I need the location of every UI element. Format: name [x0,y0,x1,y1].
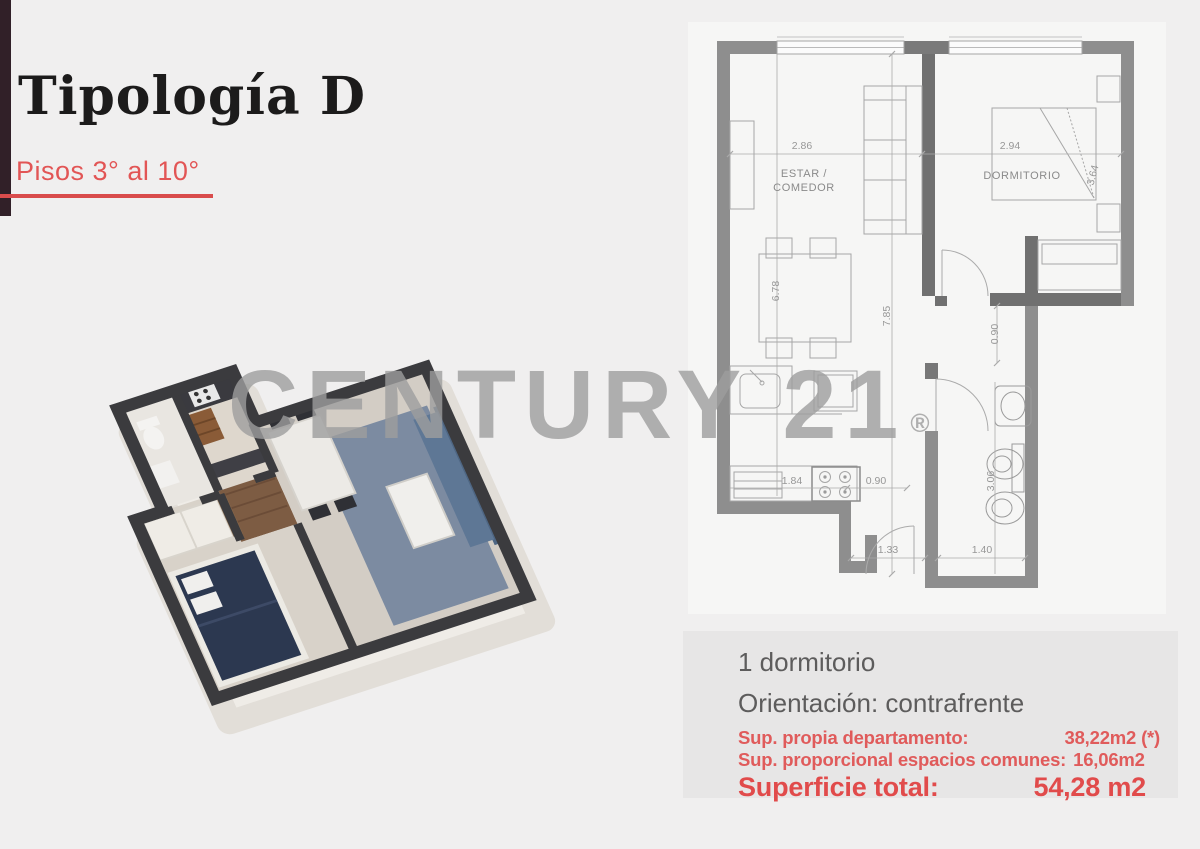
orientation: Orientación: contrafrente [738,688,1160,719]
dim-estar-depth: 6.78 [770,281,782,302]
dim-total-depth: 7.85 [881,306,893,327]
own-area-label: Sup. propia departamento: [738,727,968,749]
bedroom-count: 1 dormitorio [738,647,1160,678]
dim-hall-width: 0.90 [989,324,1001,345]
floors-subtitle: Pisos 3° al 10° [16,156,200,187]
floor-plan-svg: 2.86 2.94 3.64 6.78 7.85 0.90 1.84 0.90 … [688,22,1166,614]
total-area-value: 54,28 m2 [1034,772,1161,803]
subtitle-underline [0,194,213,198]
page-title: Tipología D [18,66,366,127]
dim-estar-width: 2.86 [792,140,813,152]
window-bedroom [949,41,1082,54]
accent-stripe [0,0,11,216]
dim-bath-width: 1.40 [972,544,993,556]
total-area-row: Superficie total: 54,28 m2 [738,772,1160,803]
flyer-page: Tipología D Pisos 3° al 10° [0,0,1200,849]
window-living [777,41,904,54]
room-label-estar-2: COMEDOR [773,182,835,194]
total-area-label: Superficie total: [738,772,939,803]
registered-mark: ® [910,408,929,438]
room-label-estar-1: ESTAR / [781,168,828,180]
dim-bath-depth: 3.06 [985,471,997,492]
watermark-text: CENTURY 21 [228,350,906,459]
dim-kitchen-run: 1.84 [782,475,803,487]
common-area-value: 16,06m2 [1073,749,1145,771]
own-area-value: 38,22m2 (*) [1065,727,1161,749]
dim-entry-width: 1.33 [878,544,899,556]
room-label-dormitorio: DORMITORIO [983,170,1060,182]
dim-dorm-width: 2.94 [1000,140,1021,152]
common-area-row: Sup. proporcional espacios comunes: 16,0… [738,749,1160,771]
common-area-label: Sup. proporcional espacios comunes: [738,749,1066,771]
dim-kitchen-pass: 0.90 [866,475,887,487]
floor-plan: 2.86 2.94 3.64 6.78 7.85 0.90 1.84 0.90 … [688,22,1166,614]
century21-watermark: CENTURY 21® [228,352,930,459]
unit-details-box: 1 dormitorio Orientación: contrafrente S… [683,631,1178,798]
own-area-row: Sup. propia departamento: 38,22m2 (*) [738,727,1160,749]
